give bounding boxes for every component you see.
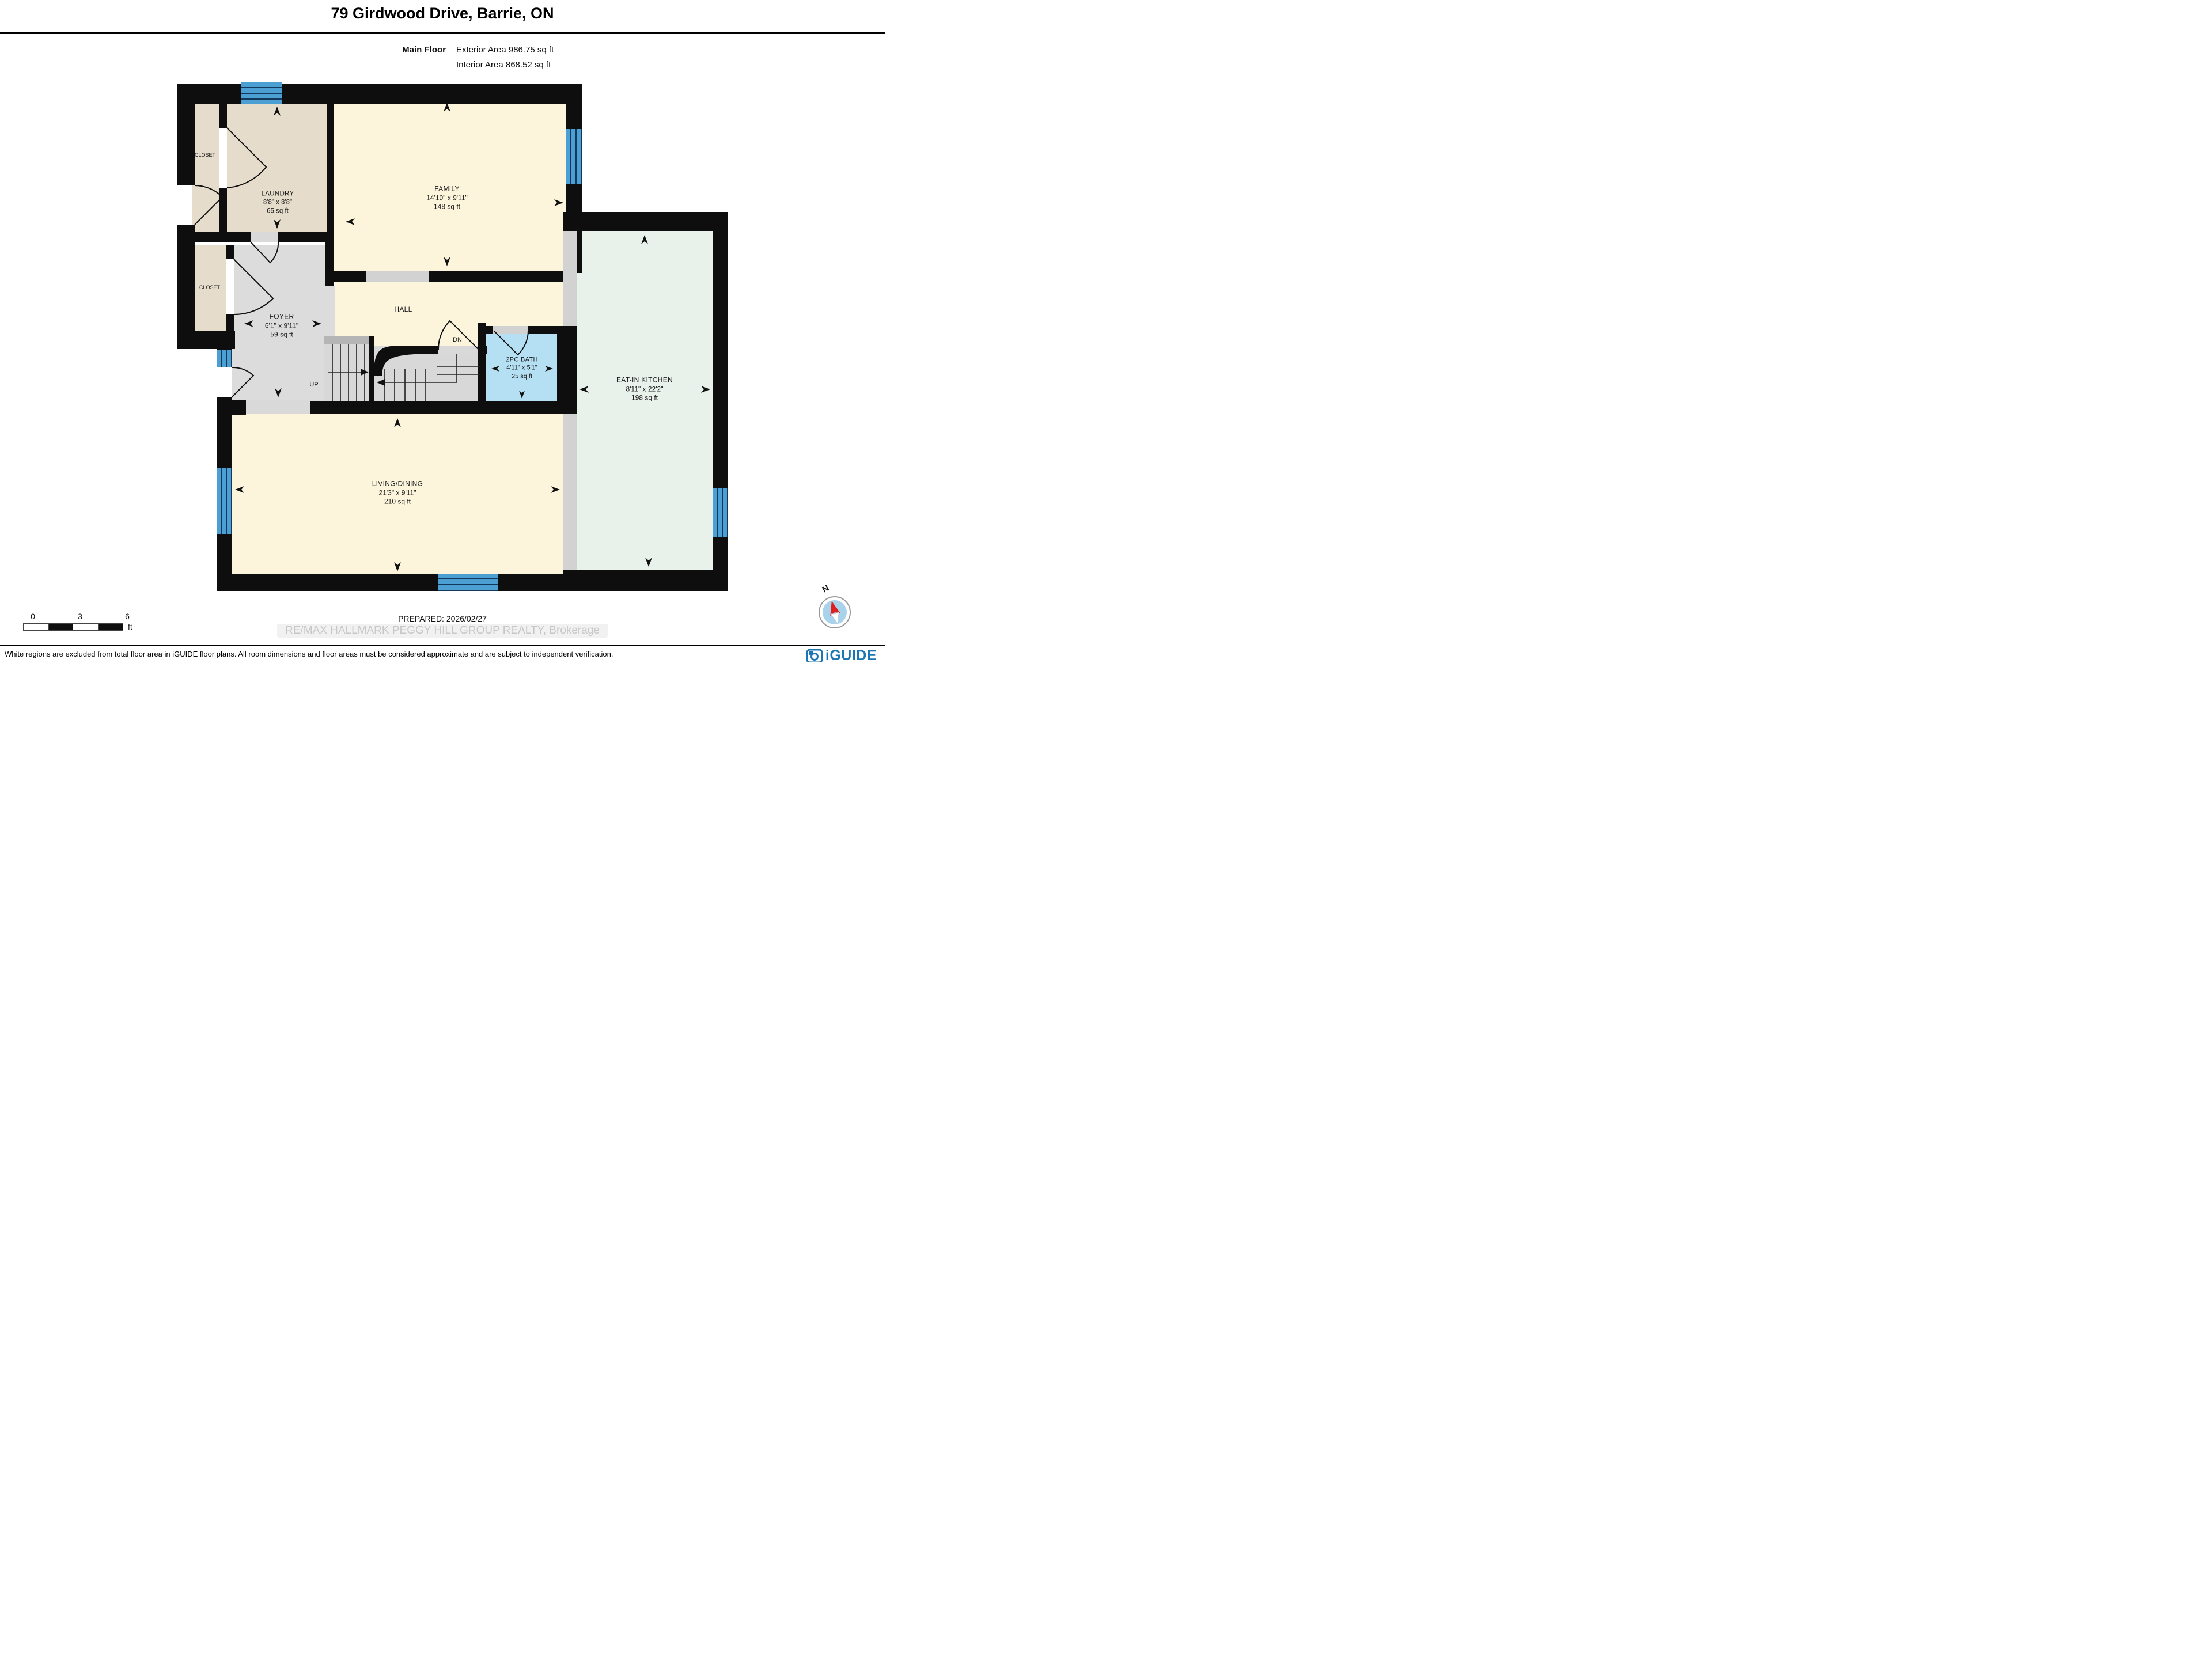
compass-icon <box>819 596 851 628</box>
wall-living-left-a <box>217 414 232 468</box>
footer-divider <box>0 645 885 646</box>
scale-unit: ft <box>128 622 132 631</box>
floor-plan-page: 79 Girdwood Drive, Barrie, ON Main Floor… <box>0 0 885 662</box>
window-living-left-2 <box>217 501 232 534</box>
wall-top <box>177 84 582 104</box>
header-divider <box>0 32 885 34</box>
wall-living-bottom-west <box>217 574 438 591</box>
wall-entry-a <box>217 332 232 350</box>
wall-living-top <box>310 401 577 414</box>
wall-bath-top-b <box>528 326 557 334</box>
window-entry-sidelight <box>217 350 232 367</box>
iguide-brand: iGUIDE <box>806 647 877 662</box>
stair-up-landing <box>324 336 369 344</box>
wall-left-upper-a <box>177 84 195 185</box>
living-kitchen-opening <box>563 414 577 570</box>
wall-laundry-bottom-west <box>177 232 251 242</box>
wall-bath-top-a <box>486 326 493 334</box>
laundry-label: LAUNDRY 8'8" x 8'8" 65 sq ft <box>262 190 294 216</box>
foyer-living-threshold <box>246 400 310 414</box>
window-living-left-1 <box>217 468 232 501</box>
wall-closet-mid-right-a <box>226 245 234 259</box>
dn-door-sill <box>438 346 479 354</box>
compass-north-label: N <box>820 583 831 594</box>
wall-family-bottom-east <box>429 271 577 282</box>
family-label: FAMILY 14'10" x 9'11" 148 sq ft <box>426 185 468 212</box>
kitchen-label: EAT-IN KITCHEN 8'11" x 22'2" 198 sq ft <box>616 376 673 403</box>
floor-label: Main Floor <box>369 45 446 55</box>
stair-up-floor <box>324 336 369 401</box>
exterior-area: Exterior Area 986.75 sq ft <box>456 45 554 55</box>
hall-floor-east <box>478 282 563 326</box>
scale-bar-segments <box>23 623 123 631</box>
page-title: 79 Girdwood Drive, Barrie, ON <box>0 5 885 22</box>
wall-closet-top-b <box>219 188 227 232</box>
stair-down-floor <box>374 346 482 401</box>
window-living-bottom <box>438 574 498 591</box>
wall-stair-divider <box>369 336 374 401</box>
wall-kitchen-top <box>577 212 728 231</box>
window-laundry-top <box>241 82 282 104</box>
family-hall-opening <box>366 271 429 282</box>
iguide-logo-text: iGUIDE <box>825 647 877 662</box>
wall-closet-mid-right-b <box>226 314 234 331</box>
closet-top-floor <box>192 104 219 232</box>
laundry-door-sill <box>251 232 278 242</box>
disclaimer-text: White regions are excluded from total fl… <box>5 650 613 658</box>
wall-foyer-hall-stub <box>325 240 333 286</box>
stairs-down-label: DN <box>453 336 462 344</box>
wall-kitchen-bottom <box>563 570 728 591</box>
hall-kitchen-opening <box>563 231 577 326</box>
wall-closet-top-a <box>219 104 227 128</box>
foyer-label: FOYER 6'1" x 9'11" 59 sq ft <box>265 313 298 340</box>
hall-label: HALL <box>394 305 412 314</box>
bath-door-sill <box>493 326 528 334</box>
window-kitchen-right <box>713 488 728 537</box>
foyer-floor-east <box>324 286 335 339</box>
wall-kitchen-left-corner <box>563 212 577 231</box>
stairs-up-label: UP <box>309 381 318 389</box>
interior-area: Interior Area 868.52 sq ft <box>456 60 551 70</box>
bath-label: 2PC BATH 4'11" x 5'1" 25 sq ft <box>506 356 537 381</box>
closet-top-label: CLOSET <box>195 152 215 159</box>
brokerage-watermark: RE/MAX HALLMARK PEGGY HILL GROUP REALTY,… <box>277 624 608 638</box>
wall-kitchen-left-mid <box>557 326 577 414</box>
window-family-right <box>566 129 582 184</box>
living-label: LIVING/DINING 21'3" x 9'11" 210 sq ft <box>372 480 423 507</box>
wall-bath-left <box>478 323 486 401</box>
closet-mid-label: CLOSET <box>199 285 220 291</box>
wall-laundry-bottom-east <box>278 232 329 242</box>
foyer-floor-lower <box>232 349 326 403</box>
wall-living-jog <box>217 400 246 415</box>
iguide-logo-icon <box>806 649 823 663</box>
prepared-date: PREPARED: 2026/02/27 <box>0 614 885 623</box>
